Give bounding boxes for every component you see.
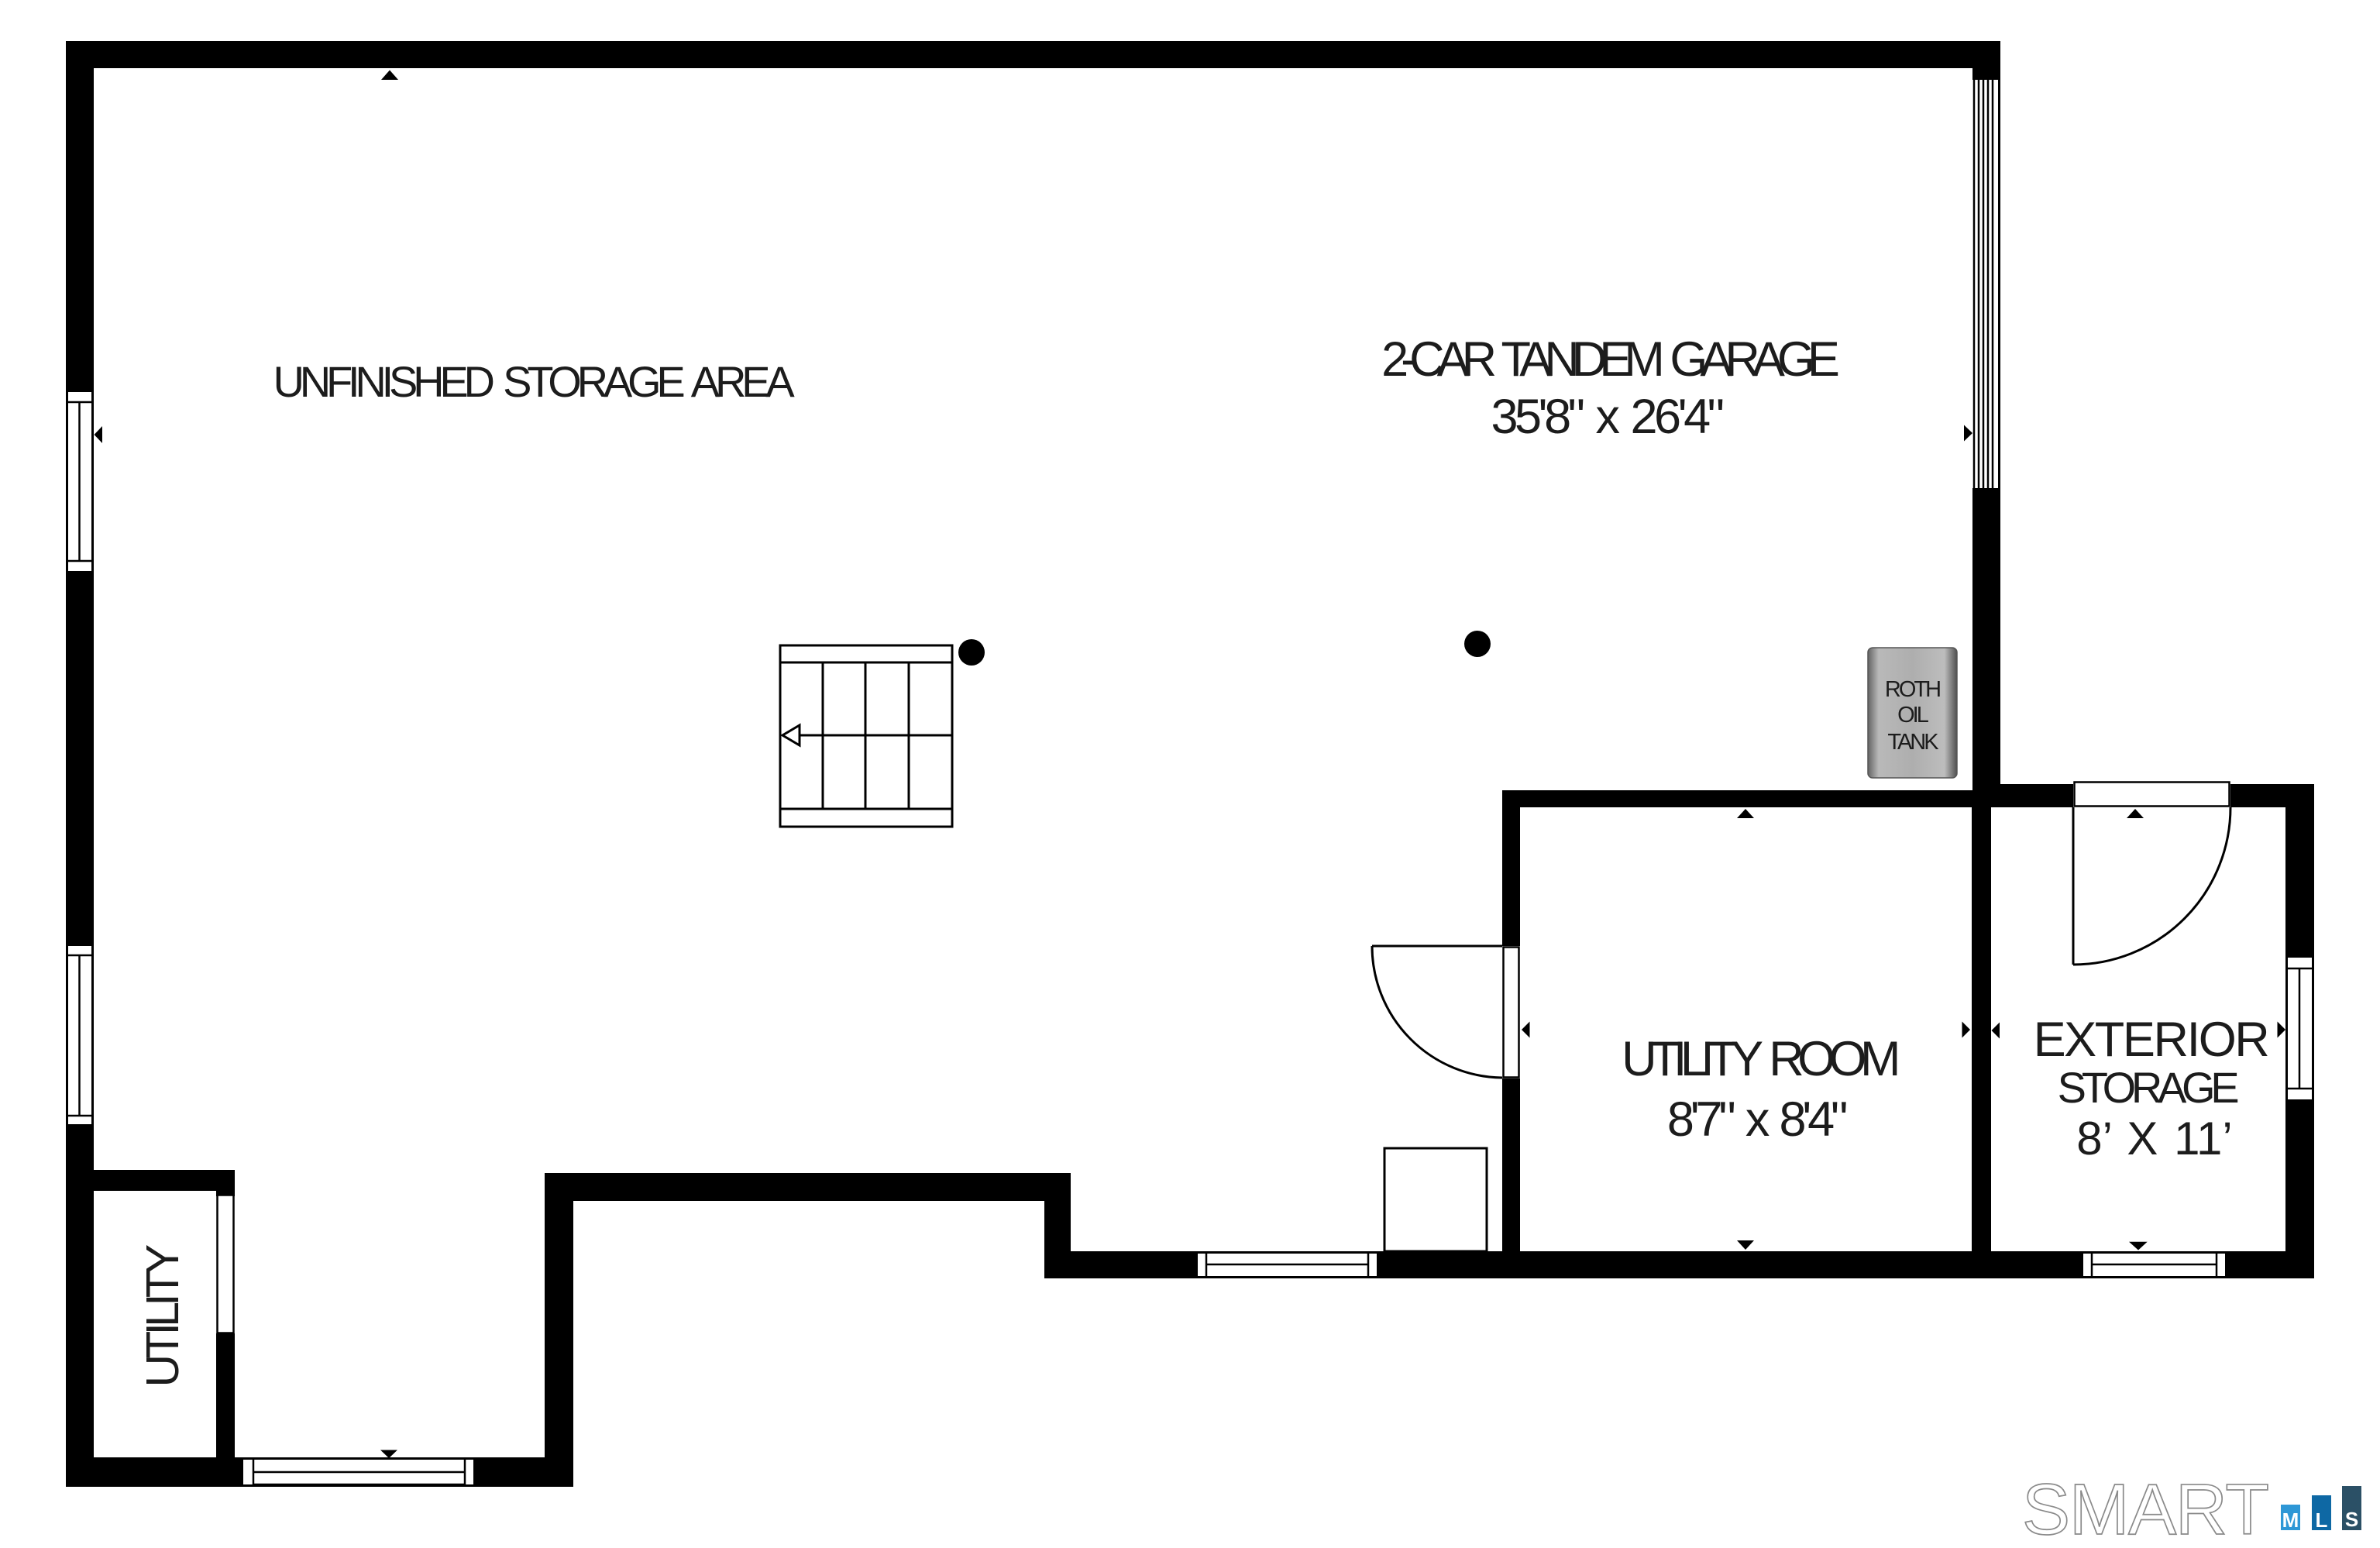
svg-text:EXTERIOR: EXTERIOR [2034, 1013, 2268, 1067]
svg-text:UTILITY ROOM: UTILITY ROOM [1622, 1032, 1897, 1086]
svg-text:UTILITY: UTILITY [137, 1244, 188, 1387]
svg-text:TANK: TANK [1887, 730, 1939, 755]
svg-text:STORAGE: STORAGE [2058, 1063, 2238, 1112]
svg-text:OIL: OIL [1897, 703, 1929, 728]
svg-text:8’ X 11’: 8’ X 11’ [2076, 1113, 2232, 1164]
svg-text:L: L [2316, 1508, 2328, 1532]
svg-text:2-CAR TANDEM GARAGE: 2-CAR TANDEM GARAGE [1381, 332, 1838, 387]
svg-text:ROTH: ROTH [1885, 677, 1940, 702]
svg-text:SMART: SMART [2022, 1469, 2268, 1548]
svg-text:35'8" x 26'4": 35'8" x 26'4" [1491, 390, 1722, 444]
svg-text:M: M [2282, 1508, 2299, 1532]
svg-text:UNFINISHED STORAGE AREA: UNFINISHED STORAGE AREA [273, 357, 796, 406]
svg-text:S: S [2345, 1508, 2358, 1531]
svg-text:8'7" x 8'4": 8'7" x 8'4" [1667, 1092, 1846, 1147]
